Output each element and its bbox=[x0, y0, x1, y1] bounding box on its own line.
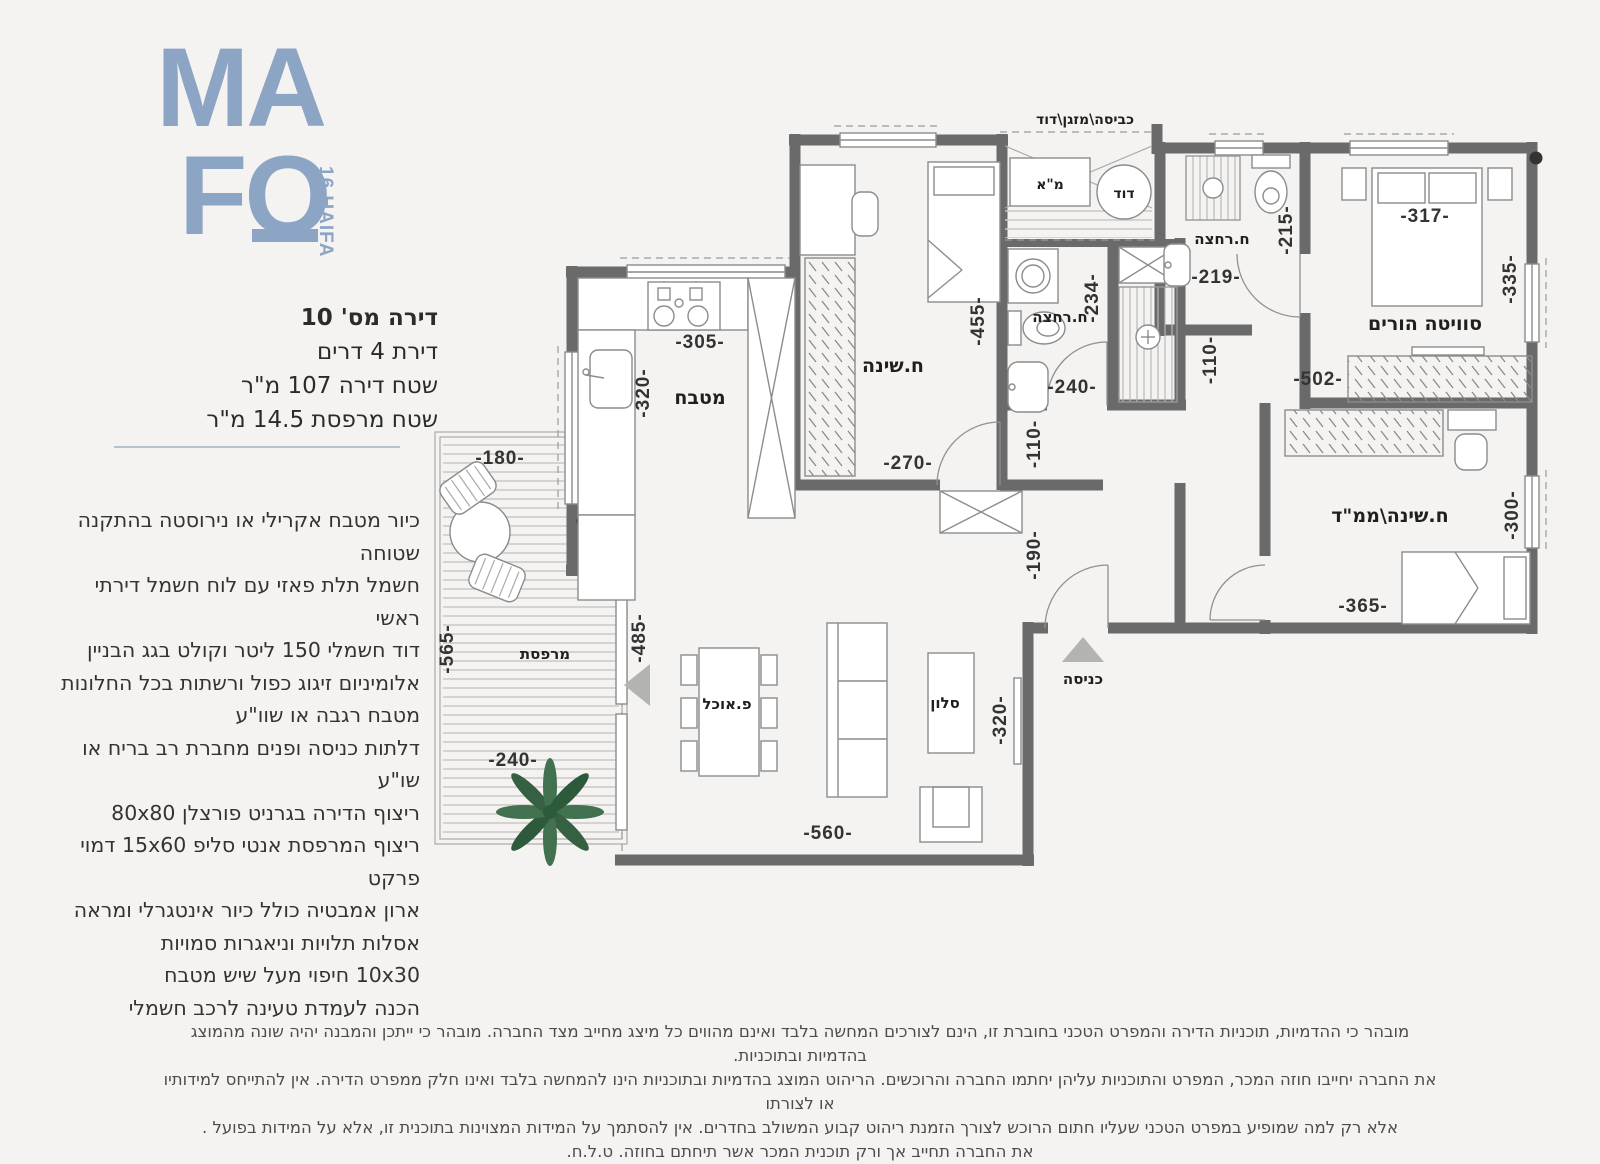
room-label-entrance: כניסה bbox=[1063, 670, 1103, 688]
spec-item: ריצוף הדירה בגרניט פורצלן 80x80 bbox=[55, 797, 420, 830]
stove-icon bbox=[648, 282, 720, 330]
room-label-mamad: ח.שינה\ממ"ד bbox=[1331, 505, 1448, 527]
door-icon bbox=[1210, 565, 1265, 620]
logo-ma: MA bbox=[156, 32, 324, 144]
room-label-bath2: ח.רחצה bbox=[1194, 230, 1249, 248]
sink-icon bbox=[1008, 362, 1048, 412]
disclaimer-line: את החברה תחייב אך ורק תוכנית המכר אשר תי… bbox=[160, 1140, 1440, 1164]
dim-master-w: -317- bbox=[1400, 206, 1449, 227]
chair bbox=[1455, 434, 1487, 470]
dim-bath1-h: -234- bbox=[1082, 273, 1103, 322]
spec-item: 10x30 חיפוי מעל שיש מטבח bbox=[55, 959, 420, 992]
hall-cabinet bbox=[940, 491, 1022, 533]
room-label-ma: מ"א bbox=[1036, 177, 1064, 193]
plant-icon bbox=[496, 758, 604, 866]
disclaimer-line: את החברה יחייבו חוזה המכר, המפרט והתוכני… bbox=[160, 1068, 1440, 1116]
dim-balcony-w: -240- bbox=[488, 750, 537, 771]
desk bbox=[1448, 410, 1496, 430]
apartment-area: שטח דירה 107 מ"ר bbox=[140, 369, 438, 403]
disclaimer-line: אלא רק למה שמופיע במפרט הטכני שעליו חתום… bbox=[160, 1116, 1440, 1140]
spec-item: דוד חשמלי 150 ליטר וקולט בגג הבניין bbox=[55, 634, 420, 667]
spec-item: מטבח רגבה או שוו"ע bbox=[55, 699, 420, 732]
nightstand bbox=[1488, 168, 1512, 200]
dim-mamad-w: -365- bbox=[1338, 596, 1387, 617]
tv-console bbox=[1014, 678, 1021, 764]
closet bbox=[1285, 410, 1443, 456]
spec-item: כיור מטבח אקרילי או נירוסטה בהתקנה שטוחה bbox=[55, 504, 420, 569]
room-label-dining: פ.אוכל bbox=[702, 695, 751, 713]
window-icon bbox=[1209, 134, 1269, 155]
sliding-door-panel bbox=[616, 714, 627, 830]
logo-underline bbox=[252, 229, 318, 242]
disclaimer: מובהר כי ההדמיות, תוכניות הדירה והמפרט ה… bbox=[160, 1020, 1440, 1164]
room-label-bedroom: ח.שינה bbox=[862, 355, 924, 377]
toilet-icon bbox=[1252, 155, 1290, 213]
apartment-balcony-area: שטח מרפסת 14.5 מ"ר bbox=[140, 403, 438, 437]
apartment-title: דירה מס' 10 bbox=[140, 301, 438, 335]
bedroom-furniture bbox=[800, 162, 1022, 533]
dim-kitchen-h: -320- bbox=[633, 368, 654, 417]
dim-foyer-h: -190- bbox=[1024, 530, 1045, 579]
spec-item: חשמל תלת פאזי עם לוח חשמל דירתי ראשי bbox=[55, 569, 420, 634]
window-icon bbox=[620, 258, 790, 279]
dim-living-h: -320- bbox=[990, 695, 1011, 744]
room-label-service: כביסה\מזגן\דוד bbox=[1036, 112, 1134, 128]
sofa-icon bbox=[827, 623, 887, 797]
dim-mamad-h: -300- bbox=[1502, 490, 1523, 539]
wall-node bbox=[1530, 152, 1543, 165]
single-bed-icon bbox=[928, 162, 1000, 302]
dim-bedroom-h: -455- bbox=[968, 296, 989, 345]
room-label-master: סוויטה הורים bbox=[1368, 313, 1482, 335]
dim-hall-w: -110- bbox=[1200, 336, 1221, 384]
spec-item: אסלות תלויות וניאגרות סמויות bbox=[55, 927, 420, 960]
single-bed-icon bbox=[1402, 552, 1530, 624]
floor-plan: מטבח ח.שינה ח.רחצה ח.רחצה סוויטה הורים ח… bbox=[420, 100, 1560, 890]
armchair-icon bbox=[920, 787, 982, 842]
shower-icon bbox=[1186, 156, 1240, 220]
dim-balcony-top: -180- bbox=[475, 448, 524, 469]
door-icon bbox=[937, 422, 1000, 485]
chair bbox=[852, 192, 878, 236]
dim-bedroom-w: -270- bbox=[883, 453, 932, 474]
door-icon bbox=[1237, 254, 1300, 317]
closet bbox=[1348, 356, 1532, 402]
spec-item: אלומיניום זיגוג כפול ורשתות בכל החלונות bbox=[55, 667, 420, 700]
spec-item: דלתות כניסה ופנים מחברת רב בריח או שו"ע bbox=[55, 732, 420, 797]
logo-tagline: 16 HAIFA bbox=[314, 166, 336, 252]
room-label-balcony: מרפסת bbox=[520, 645, 570, 663]
desk bbox=[800, 165, 855, 255]
kitchen-fixtures bbox=[578, 278, 795, 600]
dim-kitchen-w: -305- bbox=[675, 332, 724, 353]
washing-machine-icon bbox=[1008, 249, 1058, 303]
dim-bath1-w: -240- bbox=[1047, 377, 1096, 398]
sink-icon bbox=[1164, 244, 1190, 286]
door-icon bbox=[1045, 565, 1108, 628]
tall-cabinet bbox=[748, 278, 795, 518]
living-furniture bbox=[681, 623, 1021, 842]
double-bed-icon bbox=[1372, 168, 1482, 306]
room-label-boiler: דוד bbox=[1113, 186, 1134, 202]
window-icon bbox=[1525, 258, 1546, 348]
spec-item: ארון אמבטיה כולל כיור אינטגרלי ומראה bbox=[55, 894, 420, 927]
dim-balcony-h: -565- bbox=[437, 624, 458, 673]
room-label-kitchen: מטבח bbox=[674, 387, 725, 409]
room-label-salon: סלון bbox=[930, 694, 960, 712]
window-icon bbox=[834, 126, 942, 147]
dim-master-closet: -502- bbox=[1293, 369, 1342, 390]
nightstand bbox=[1342, 168, 1366, 200]
dim-master-h: -335- bbox=[1500, 254, 1521, 303]
shelf bbox=[1412, 347, 1484, 355]
dim-bath2-w: -219- bbox=[1191, 267, 1240, 288]
dim-living-w: -560- bbox=[803, 823, 852, 844]
opening-marker-icon bbox=[624, 664, 650, 706]
window-icon bbox=[1525, 470, 1546, 554]
dim-bath2-h: -215- bbox=[1276, 205, 1297, 254]
spec-item: ריצוף המרפסת אנטי סליפ 15x60 דמוי פרקט bbox=[55, 829, 420, 894]
window-icon bbox=[1344, 134, 1454, 155]
dim-pass-bedroom: -110- bbox=[1024, 420, 1045, 468]
spec-list: כיור מטבח אקרילי או נירוסטה בהתקנה שטוחה… bbox=[55, 504, 420, 1024]
dim-living-left: -485- bbox=[629, 613, 650, 662]
apartment-rooms: דירת 4 דרים bbox=[140, 335, 438, 369]
kitchen-sink-icon bbox=[583, 350, 632, 408]
shower-icon bbox=[1119, 287, 1177, 402]
sliding-door-panel bbox=[616, 592, 627, 704]
room-label-bath1: ח.רחצה bbox=[1032, 308, 1087, 326]
kitchen-cabinet bbox=[578, 515, 635, 600]
disclaimer-line: מובהר כי ההדמיות, תוכניות הדירה והמפרט ה… bbox=[160, 1020, 1440, 1068]
apartment-info: דירה מס' 10 דירת 4 דרים שטח דירה 107 מ"ר… bbox=[140, 301, 438, 437]
closet bbox=[805, 258, 855, 476]
entrance-arrow-icon bbox=[1062, 637, 1104, 662]
divider-line bbox=[114, 446, 400, 448]
